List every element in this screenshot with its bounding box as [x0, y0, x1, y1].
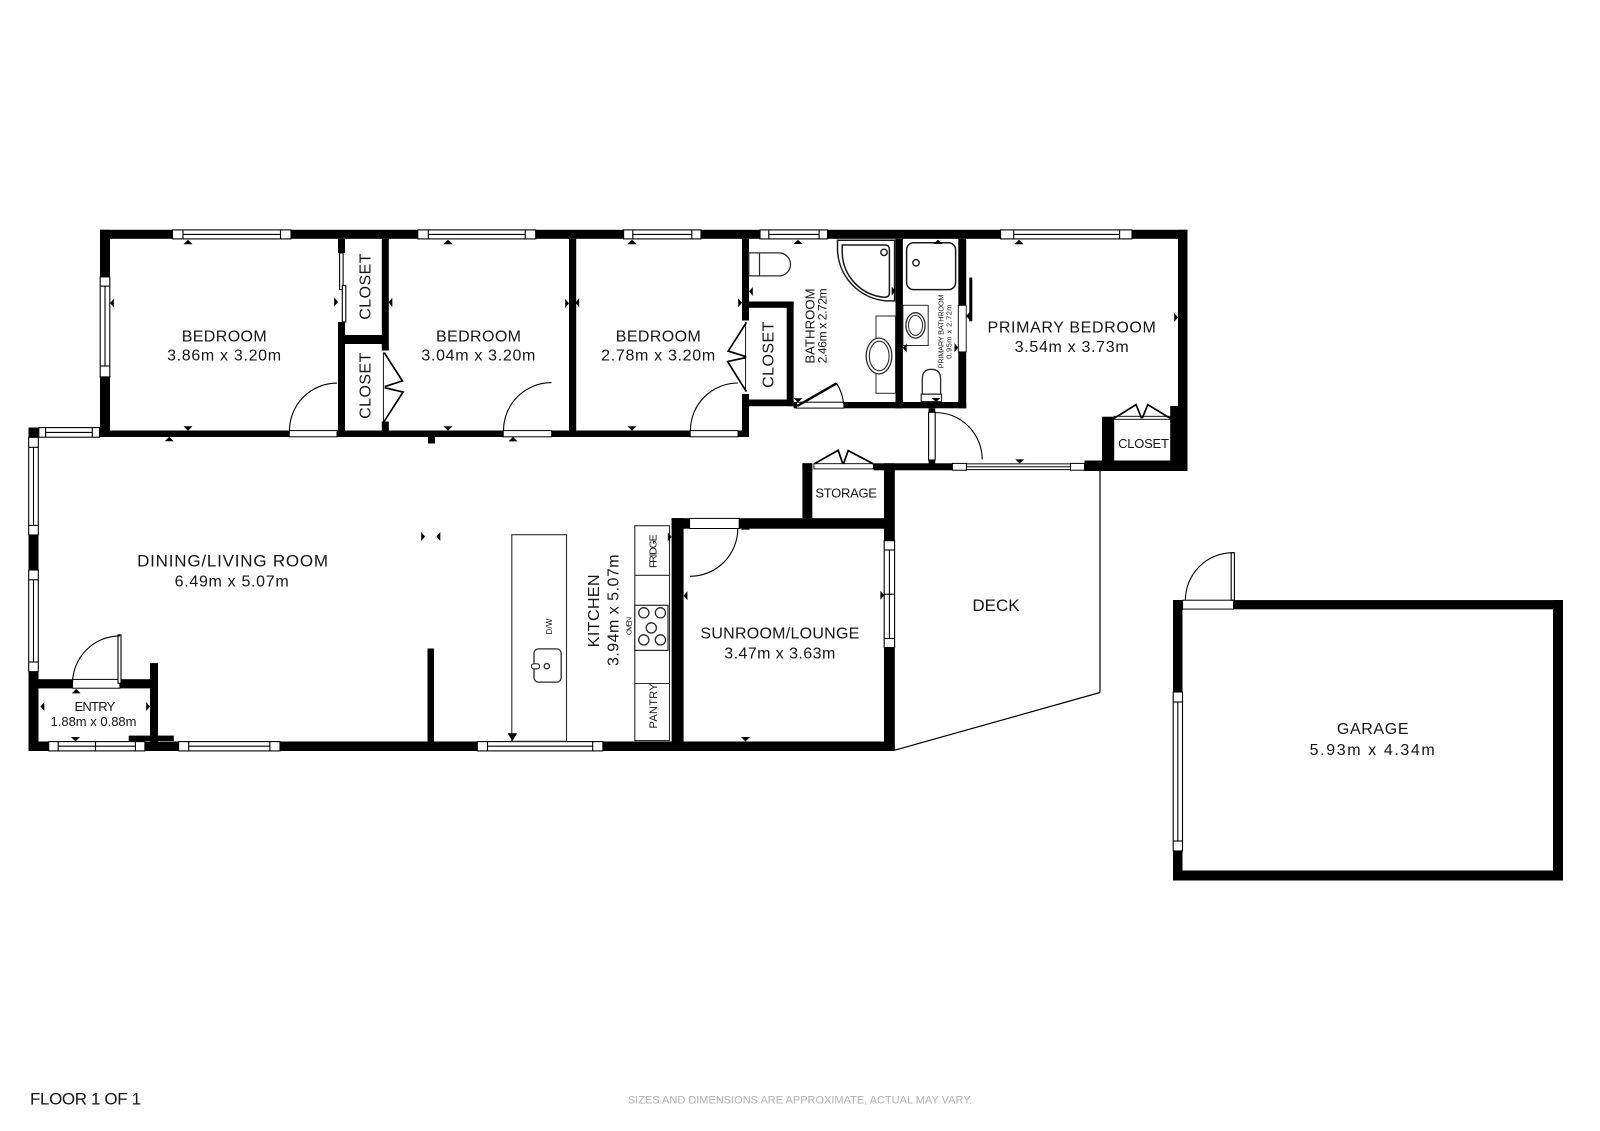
- svg-text:2.46m x 2.72m: 2.46m x 2.72m: [816, 288, 830, 363]
- svg-text:3.94m x 5.07m: 3.94m x 5.07m: [605, 554, 622, 666]
- svg-text:3.47m x 3.63m: 3.47m x 3.63m: [724, 646, 835, 663]
- svg-text:SUNROOM/LOUNGE: SUNROOM/LOUNGE: [700, 625, 859, 642]
- svg-text:CLOSET: CLOSET: [760, 321, 777, 388]
- svg-text:5.93m x 4.34m: 5.93m x 4.34m: [1310, 742, 1437, 759]
- svg-text:BEDROOM: BEDROOM: [182, 328, 267, 345]
- svg-text:CLOSET: CLOSET: [1118, 436, 1169, 451]
- svg-text:PRIMARY BEDROOM: PRIMARY BEDROOM: [988, 320, 1157, 337]
- svg-text:STORAGE: STORAGE: [815, 485, 877, 500]
- svg-text:3.86m x 3.20m: 3.86m x 3.20m: [167, 347, 282, 364]
- svg-text:CLOSET: CLOSET: [357, 253, 374, 320]
- svg-text:SIZES AND DIMENSIONS ARE APPRO: SIZES AND DIMENSIONS ARE APPROXIMATE, AC…: [628, 1094, 972, 1106]
- svg-text:1.88m x 0.88m: 1.88m x 0.88m: [51, 714, 137, 729]
- svg-text:DECK: DECK: [972, 596, 1020, 615]
- svg-text:CLOSET: CLOSET: [357, 352, 374, 419]
- svg-text:3.04m x 3.20m: 3.04m x 3.20m: [421, 347, 536, 364]
- svg-text:PANTRY: PANTRY: [648, 683, 660, 729]
- svg-text:BEDROOM: BEDROOM: [616, 328, 701, 345]
- svg-text:6.49m x 5.07m: 6.49m x 5.07m: [175, 574, 290, 591]
- svg-text:ENTRY: ENTRY: [75, 699, 116, 714]
- svg-text:BEDROOM: BEDROOM: [436, 328, 521, 345]
- svg-text:0.95m x 2.72m: 0.95m x 2.72m: [945, 304, 954, 359]
- svg-text:FLOOR 1 OF 1: FLOOR 1 OF 1: [30, 1090, 141, 1109]
- svg-text:2.78m x 3.20m: 2.78m x 3.20m: [601, 347, 716, 364]
- svg-text:GARAGE: GARAGE: [1337, 721, 1409, 738]
- svg-text:DINING/LIVING ROOM: DINING/LIVING ROOM: [137, 551, 329, 570]
- svg-text:FRIDGE: FRIDGE: [648, 534, 660, 568]
- svg-text:KITCHEN: KITCHEN: [586, 574, 603, 647]
- svg-text:OVEN: OVEN: [625, 617, 634, 635]
- svg-text:3.54m x 3.73m: 3.54m x 3.73m: [1015, 339, 1130, 356]
- svg-text:D/W: D/W: [545, 618, 554, 634]
